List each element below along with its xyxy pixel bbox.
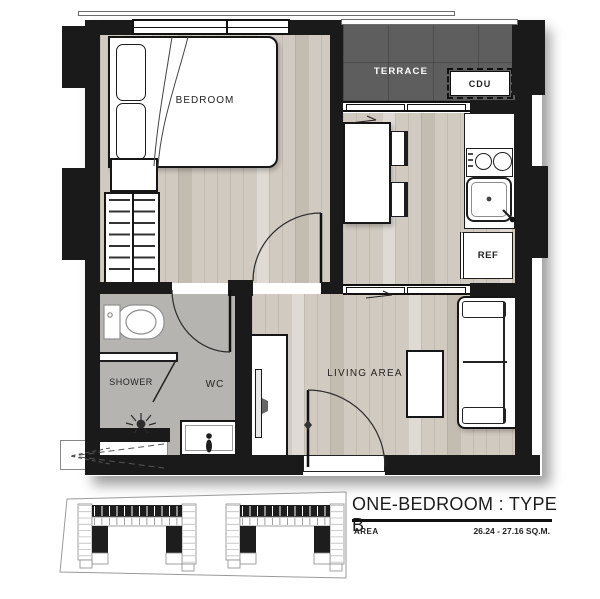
terrace-rail <box>341 19 518 25</box>
coffee-table <box>406 350 444 418</box>
floor-plan-page: REF CDU <box>0 0 600 599</box>
dining-chair <box>391 182 408 217</box>
terrace-label: TERRACE <box>351 66 451 77</box>
sofa-seat-line <box>463 361 507 363</box>
tv <box>255 369 262 438</box>
dining-table <box>343 122 391 224</box>
wardrobe <box>104 192 160 284</box>
wall-wc-living <box>235 294 252 456</box>
wall-shower <box>85 428 170 442</box>
cdu-unit: CDU <box>450 71 510 96</box>
wall-bottom <box>385 455 540 475</box>
sink-basin <box>471 182 507 217</box>
wall-bathroom <box>100 282 172 294</box>
stove-burner <box>493 152 512 171</box>
building-outline <box>78 504 196 571</box>
site-boundary <box>60 492 346 578</box>
sliding-panel <box>407 287 466 294</box>
pillow <box>116 44 146 101</box>
hanger-rail <box>109 199 130 279</box>
sliding-panel <box>346 104 405 111</box>
wc-label: WC <box>195 379 235 390</box>
vanity-basin <box>185 425 233 451</box>
site-key-plan <box>30 488 350 592</box>
sofa-armrest <box>462 407 506 424</box>
wall-bedroom-divider <box>330 20 343 294</box>
building-outline <box>226 504 344 571</box>
window-mullion <box>226 21 228 33</box>
wall-column <box>62 168 100 260</box>
bedroom-window <box>132 19 290 35</box>
area-label: AREA <box>354 527 379 536</box>
balcony-rail <box>78 11 455 16</box>
hanger-rail <box>134 199 155 279</box>
wall <box>470 283 532 296</box>
kitchen-sink <box>466 177 512 222</box>
ref-label: REF <box>478 250 499 261</box>
sofa-armrest <box>462 301 506 318</box>
vanity-sink <box>180 420 238 456</box>
dining-chair <box>391 131 408 166</box>
stove-burner <box>475 153 492 170</box>
shower-partition <box>98 352 178 362</box>
terrace-sliding-door <box>343 101 470 112</box>
wall <box>321 282 343 294</box>
sofa <box>457 296 524 429</box>
dresser <box>110 158 158 192</box>
living-area-label: LIVING AREA <box>315 368 415 379</box>
shower-label: SHOWER <box>100 377 162 387</box>
living-sliding-door <box>343 284 470 295</box>
area-value: 26.24 - 27.16 SQ.M. <box>426 526 550 536</box>
pillow <box>116 103 146 160</box>
title-rule <box>352 519 552 522</box>
sliding-panel <box>346 287 405 294</box>
wall-kitchen <box>470 100 517 113</box>
cdu-label: CDU <box>469 79 492 89</box>
refrigerator: REF <box>460 232 513 279</box>
bedroom-label: BEDROOM <box>160 95 250 106</box>
wall-bottom <box>85 455 303 475</box>
sliding-panel <box>407 104 466 111</box>
entry-threshold <box>303 455 385 472</box>
wall-column <box>515 166 548 258</box>
